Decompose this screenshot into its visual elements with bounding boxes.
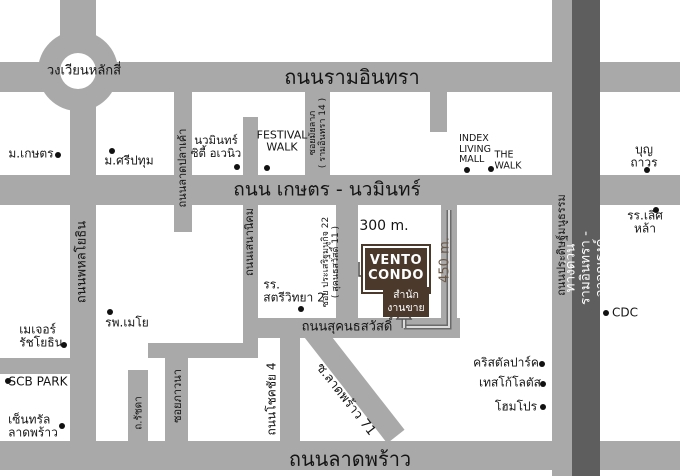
road-label-phahon-yothin: ถนนพหลโยธิน [76,221,91,303]
poi-label-scb-park: SCB PARK [9,375,68,388]
poi-dot-central-ladprao [59,423,65,429]
poi-label-kaset-university: ม.เกษตร [8,147,53,160]
poi-label-homepro: โฮมโปร [495,400,537,413]
poi-dot-scb-park [5,378,11,384]
road-label-ratchada: ถ.รัชดา [133,396,144,430]
road-label-lat-phrao: ถนนลาดพร้าว [289,448,411,470]
poi-dot-the-walk [488,166,494,172]
poi-dot-homepro [540,404,546,410]
poi-dot-satriwithaya-2 [298,306,304,312]
poi-label-cdc: CDC [612,306,638,319]
poi-label-major-ratchayothin: เมเจอร์ รัชโยธิน [19,324,63,351]
road-label-soi-mailap: ซอยมัยลาภ ( รามอินทรา 14 ) [308,98,328,168]
road-label-sena-nikhom: ถนนเสนานิคม [244,208,256,276]
arrow-to-vento-line [359,262,361,276]
poi-dot-tesco-lotus [540,381,546,387]
poi-label-the-walk: THE WALK [495,150,522,171]
road-label-lat-pla-khao: ถนนลาดปลาเค้า [177,129,189,208]
poi-label-festival-walk: FESTIVAL WALK [257,130,308,155]
poi-dot-sripatum-university [109,148,115,154]
sales-office-label: สำนัก งานขาย [387,289,424,314]
poi-label-crystal-park: คริสตัลปาร์ค [473,356,539,369]
poi-dot-index-living-mall [464,167,470,173]
poi-dot-kaset-university [55,152,61,158]
poi-label-sripatum-university: ม.ศรีปทุม [104,154,153,167]
vento-condo-label: VENTO CONDO [368,254,424,284]
poi-dot-festival-walk [264,165,270,171]
road-label-sukhonthasawat: ถนนสุคนธสวัสดิ์ [302,321,393,336]
poi-dot-cdc [603,310,609,316]
poi-dot-major-ratchayothin [61,342,67,348]
poi-dot-nawamin-city-avenue [234,164,240,170]
vento-condo-box: VENTO CONDO [363,246,429,292]
location-map: ถนนรามอินทรา ถนน เกษตร - นวมินทร์ ถนนลาด… [0,0,680,476]
poi-label-boonthavorn: บุญถาวร [626,144,662,171]
poi-dot-lertlah-school [653,207,659,213]
poi-label-central-ladprao: เซ็นทรัล ลาดพร้าว [8,414,58,441]
poi-label-satriwithaya-2: รร. สตรีวิทยา 2 [263,279,324,306]
poi-dot-crystal-park [539,361,545,367]
poi-label-tesco-lotus: เทสโก้โลตัส [479,376,541,389]
road-label-soi-phawana: ซอยภาวนา [172,369,184,423]
road-label-chokchai-4: ถนนโชคชัย 4 [265,363,278,436]
distance-450m-label: 450 m. [439,237,454,283]
poi-label-index-living-mall: INDEX LIVING MALL [459,134,491,166]
distance-300m-label: 300 m. [359,219,408,235]
sales-office-box: สำนัก งานขาย [383,287,429,317]
poi-label-lertlah-school: รร.เลิศหล้า [627,210,663,237]
road-label-kaset-nawamin: ถนน เกษตร - นวมินทร์ [233,179,420,200]
poi-dot-boonthavorn [644,167,650,173]
road-label-expressway: ทางด่วนรามอินทรา - อาจณรงค์ [563,221,608,315]
road-label-ram-inthra: ถนนรามอินทรา [284,66,419,88]
road-label-lak-si-roundabout: วงเวียนหลักสี่ [47,65,121,80]
poi-dot-mayo-hospital [107,309,113,315]
poi-label-nawamin-city-avenue: นวมินทร์ ซิตี้ อเวนิว [191,134,242,160]
poi-label-mayo-hospital: รพ.เมโย [105,316,149,329]
